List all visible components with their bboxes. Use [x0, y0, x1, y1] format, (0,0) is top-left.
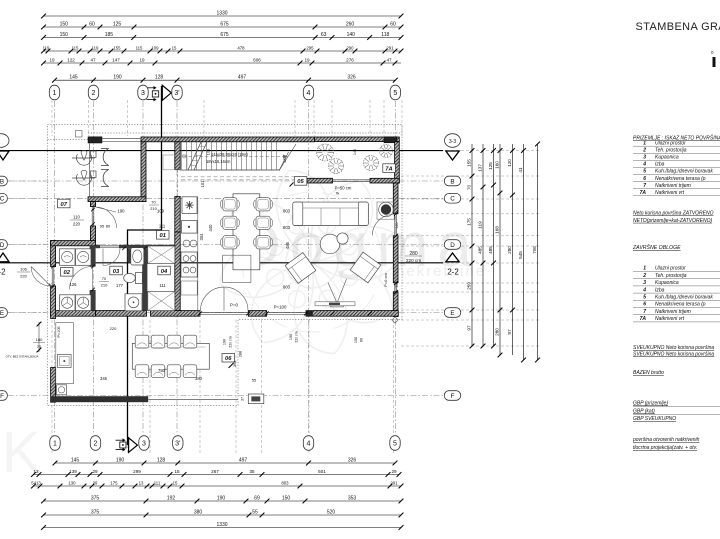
svg-text:Neto korisna površina ZATVOREN: Neto korisna površina ZATVORENO [633, 211, 714, 217]
svg-text:120: 120 [507, 159, 512, 167]
svg-text:OTV. BEZ OSTAKLJENJA: OTV. BEZ OSTAKLJENJA [6, 355, 39, 359]
svg-text:B: B [0, 178, 4, 185]
svg-text:02: 02 [63, 270, 70, 276]
svg-text:29: 29 [93, 480, 98, 485]
svg-text:185: 185 [105, 32, 114, 38]
svg-text:155: 155 [466, 159, 471, 167]
svg-text:290: 290 [346, 45, 354, 50]
svg-text:C: C [450, 196, 455, 203]
svg-text:2: 2 [642, 273, 646, 279]
svg-text:111: 111 [159, 224, 166, 229]
svg-text:35: 35 [282, 158, 287, 163]
svg-text:220: 220 [20, 274, 27, 279]
svg-text:180: 180 [36, 337, 43, 342]
svg-text:7: 7 [643, 183, 646, 189]
svg-text:površina otvorenih natkrivenih: površina otvorenih natkrivenih [632, 437, 700, 443]
svg-text:Teh. prostorija: Teh. prostorija [655, 147, 687, 153]
svg-text:Natkriveni trijem: Natkriveni trijem [655, 309, 691, 315]
svg-text:125: 125 [113, 21, 122, 27]
svg-text:119: 119 [43, 45, 50, 50]
svg-text:190: 190 [118, 209, 126, 214]
svg-text:70: 70 [102, 276, 107, 281]
svg-text:4: 4 [307, 441, 311, 448]
svg-text:175: 175 [466, 218, 471, 226]
svg-text:GBP (kat): GBP (kat) [633, 409, 655, 415]
svg-text:140: 140 [347, 32, 356, 38]
svg-text:305: 305 [233, 361, 237, 367]
svg-text:15: 15 [172, 45, 177, 50]
svg-text:803: 803 [281, 480, 289, 485]
svg-text:Teh. prostorija: Teh. prostorija [655, 273, 687, 279]
svg-text:101: 101 [206, 148, 211, 155]
svg-text:Kupaonica: Kupaonica [655, 280, 679, 286]
svg-text:110: 110 [73, 215, 80, 220]
svg-text:210: 210 [101, 283, 108, 288]
svg-text:168: 168 [494, 226, 499, 234]
svg-text:150: 150 [60, 21, 69, 27]
svg-text:3: 3 [643, 280, 646, 286]
svg-text:18vx16,16cm: 18vx16,16cm [206, 159, 231, 164]
svg-text:Kuh./blag./dnevni boravak: Kuh./blag./dnevni boravak [655, 169, 713, 175]
svg-text:291: 291 [386, 45, 394, 50]
svg-text:192: 192 [167, 495, 176, 501]
svg-text:Natkriveni vrt: Natkriveni vrt [655, 316, 685, 322]
svg-text:SVEUKUPNO Neto korisna površi: SVEUKUPNO Neto korisna površina [633, 352, 714, 358]
svg-text:111: 111 [159, 283, 166, 288]
svg-text:3: 3 [643, 155, 646, 161]
svg-text:19: 19 [139, 57, 145, 62]
svg-text:260: 260 [346, 21, 355, 27]
svg-text:295: 295 [306, 45, 314, 50]
svg-text:D: D [0, 242, 5, 249]
svg-text:4: 4 [642, 287, 646, 293]
svg-text:3': 3' [174, 90, 179, 97]
svg-text:19: 19 [304, 57, 310, 62]
svg-text:3: 3 [142, 441, 146, 448]
svg-text:110: 110 [395, 222, 399, 228]
svg-text:07: 07 [60, 202, 67, 208]
svg-text:128: 128 [155, 75, 164, 81]
svg-text:P=105: P=105 [57, 326, 61, 337]
svg-text:1: 1 [53, 441, 57, 448]
svg-text:E: E [450, 310, 454, 317]
svg-text:Nenatkrivena terasa (p: Nenatkrivena terasa (p [655, 302, 706, 308]
svg-text:K: K [2, 420, 41, 485]
svg-text:497: 497 [238, 75, 247, 81]
svg-text:tlocrtna projekcija(zatv. + ot: tlocrtna projekcija(zatv. + otv. [633, 445, 697, 451]
svg-text:486: 486 [285, 241, 290, 249]
svg-text:150: 150 [354, 337, 358, 343]
svg-text:440: 440 [208, 224, 213, 232]
svg-text:NETO(prizemlje+kat-ZATVORENO): NETO(prizemlje+kat-ZATVORENO) [633, 218, 712, 224]
svg-text:2: 2 [642, 147, 646, 153]
svg-text:37: 37 [241, 397, 245, 401]
svg-text:803: 803 [283, 284, 291, 289]
svg-text:6: 6 [643, 302, 646, 308]
svg-text:7: 7 [643, 309, 646, 315]
svg-text:155: 155 [113, 45, 121, 50]
svg-text:29: 29 [92, 469, 98, 474]
svg-text:380: 380 [195, 376, 203, 381]
svg-text:606: 606 [253, 57, 261, 62]
svg-text:GBP SVEUKUPNO: GBP SVEUKUPNO [633, 416, 676, 422]
svg-text:140: 140 [353, 149, 357, 155]
svg-text:2-2: 2-2 [447, 268, 459, 277]
svg-text:545: 545 [518, 251, 523, 259]
svg-text:220 cm: 220 cm [295, 331, 299, 342]
svg-text:6: 6 [643, 176, 646, 182]
svg-text:109: 109 [157, 209, 165, 214]
svg-text:119: 119 [477, 221, 482, 229]
svg-text:D: D [450, 242, 455, 249]
svg-text:675: 675 [220, 32, 229, 38]
svg-text:06: 06 [225, 356, 232, 362]
svg-text:Ulazni prostor: Ulazni prostor [655, 140, 686, 146]
svg-text:280: 280 [494, 328, 499, 336]
svg-text:130: 130 [68, 480, 76, 485]
svg-text:BAZEN brutto: BAZEN brutto [633, 370, 664, 376]
svg-text:60: 60 [390, 21, 396, 27]
svg-text:60: 60 [360, 338, 364, 342]
svg-text:118: 118 [381, 32, 389, 38]
svg-text:5: 5 [643, 169, 646, 175]
svg-text:P=0: P=0 [230, 303, 238, 308]
svg-text:7A: 7A [640, 190, 647, 196]
svg-text:190: 190 [289, 334, 293, 340]
svg-text:7A: 7A [385, 166, 392, 172]
svg-text:1: 1 [53, 90, 57, 97]
svg-text:2: 2 [94, 441, 98, 448]
svg-text:Izba: Izba [655, 287, 665, 293]
svg-text:190: 190 [217, 495, 226, 501]
svg-text:267: 267 [211, 469, 219, 474]
svg-text:125: 125 [488, 162, 493, 170]
svg-text:119: 119 [92, 45, 99, 50]
svg-text:115: 115 [136, 45, 143, 50]
svg-text:126: 126 [70, 282, 78, 287]
svg-text:485: 485 [488, 246, 493, 254]
svg-text:803: 803 [283, 225, 291, 230]
svg-text:5413: 5413 [31, 480, 41, 485]
svg-text:47: 47 [386, 57, 392, 62]
svg-text:276: 276 [346, 57, 354, 62]
svg-text:55: 55 [252, 378, 257, 383]
svg-text:128: 128 [157, 457, 166, 463]
svg-text:Izba: Izba [655, 162, 665, 168]
svg-text:40: 40 [48, 282, 53, 287]
svg-text:478: 478 [237, 45, 245, 50]
svg-text:13: 13 [33, 469, 39, 474]
svg-text:299: 299 [133, 469, 141, 474]
svg-text:Natkriveni vrt: Natkriveni vrt [655, 190, 685, 196]
svg-text:55: 55 [252, 509, 258, 515]
svg-text:Kupaonica: Kupaonica [655, 155, 679, 161]
svg-text:106: 106 [20, 267, 27, 272]
svg-text:97: 97 [507, 329, 512, 335]
svg-text:14ax28,00x26 (19A): 14ax28,00x26 (19A) [211, 152, 249, 157]
svg-text:60: 60 [89, 21, 95, 27]
svg-text:STAMBENA GRAĐEVINA: STAMBENA GRAĐEVINA [636, 21, 720, 33]
svg-text:04: 04 [161, 269, 168, 275]
svg-text:P=0 cm: P=0 cm [383, 272, 388, 286]
svg-text:150: 150 [60, 32, 69, 38]
svg-text:SVEUKUPNO Neto korisna površin: SVEUKUPNO Neto korisna površina [633, 345, 714, 351]
svg-text:3': 3' [175, 441, 180, 448]
svg-text:485: 485 [477, 246, 482, 254]
svg-text:326: 326 [348, 457, 357, 463]
svg-text:1330: 1330 [216, 522, 227, 528]
svg-text:520: 520 [327, 509, 336, 515]
svg-text:2: 2 [92, 90, 96, 97]
svg-text:1: 1 [643, 140, 646, 146]
svg-text:7A: 7A [640, 316, 647, 322]
svg-text:Nenatkrivena terasa (p: Nenatkrivena terasa (p [655, 176, 706, 182]
svg-text:501: 501 [318, 469, 326, 474]
svg-text:145: 145 [71, 457, 80, 463]
svg-text:326: 326 [347, 75, 356, 81]
svg-text:C: C [0, 196, 5, 203]
svg-text:115: 115 [72, 45, 79, 50]
svg-text:Kuh./blag./dnevni boravak: Kuh./blag./dnevni boravak [655, 295, 713, 301]
svg-text:210: 210 [150, 206, 157, 211]
svg-text:01: 01 [159, 233, 165, 239]
svg-text:706: 706 [532, 246, 537, 254]
svg-text:15: 15 [173, 480, 178, 485]
svg-text:101: 101 [200, 180, 205, 188]
svg-text:139: 139 [69, 469, 77, 474]
svg-text:fix: fix [336, 191, 340, 195]
svg-text:69: 69 [254, 495, 260, 501]
svg-text:ZAVRŠNE OBLOGE: ZAVRŠNE OBLOGE [632, 244, 681, 251]
svg-text:780: 780 [158, 368, 166, 373]
svg-text:15: 15 [174, 469, 180, 474]
svg-text:4: 4 [307, 90, 311, 97]
svg-text:19: 19 [49, 57, 55, 62]
svg-text:E: E [0, 310, 4, 317]
svg-text:41: 41 [518, 167, 523, 173]
svg-text:P=50 cm: P=50 cm [335, 186, 352, 191]
svg-text:145: 145 [69, 75, 78, 81]
svg-text:97: 97 [466, 325, 471, 331]
svg-text:-2: -2 [0, 268, 6, 277]
svg-text:304: 304 [199, 233, 204, 241]
svg-text:259: 259 [466, 282, 471, 290]
svg-text:375: 375 [91, 509, 100, 515]
svg-text:220: 220 [110, 326, 117, 331]
svg-text:137: 137 [477, 164, 482, 172]
svg-text:P=100: P=100 [274, 304, 287, 309]
svg-text:288: 288 [239, 351, 243, 357]
svg-text:Natkriveni trijem: Natkriveni trijem [655, 183, 691, 189]
svg-text:95: 95 [100, 224, 105, 229]
svg-text:70: 70 [37, 344, 42, 349]
svg-text:150: 150 [282, 495, 291, 501]
svg-text:122: 122 [67, 57, 75, 62]
svg-text:3-3: 3-3 [449, 139, 456, 145]
svg-text:29: 29 [391, 469, 397, 474]
svg-text:220 cm: 220 cm [229, 336, 233, 347]
svg-text:5: 5 [393, 90, 397, 97]
svg-text:03: 03 [113, 269, 120, 275]
svg-text:160: 160 [494, 161, 499, 169]
svg-text:Ulazni prostor: Ulazni prostor [655, 266, 686, 272]
svg-text:190: 190 [113, 75, 122, 81]
svg-text:353: 353 [348, 495, 357, 501]
svg-text:147: 147 [112, 57, 120, 62]
svg-text:13: 13 [139, 480, 144, 485]
svg-text:B: B [450, 178, 454, 185]
svg-text:280: 280 [507, 246, 512, 254]
svg-text:4: 4 [642, 162, 646, 168]
svg-text:F: F [451, 393, 455, 400]
svg-text:70: 70 [151, 200, 156, 205]
svg-text:220: 220 [73, 222, 81, 227]
svg-text:220 cm: 220 cm [406, 258, 421, 263]
svg-text:70: 70 [466, 185, 471, 191]
svg-text:190: 190 [116, 457, 125, 463]
svg-text:380: 380 [194, 509, 203, 515]
svg-text:291: 291 [390, 480, 398, 485]
svg-text:1: 1 [643, 266, 646, 272]
svg-text:05: 05 [297, 179, 304, 185]
svg-text:GBP (prizemlje): GBP (prizemlje) [633, 401, 668, 407]
svg-text:675: 675 [220, 21, 229, 27]
svg-text:63: 63 [321, 32, 327, 38]
svg-text:F: F [0, 393, 4, 400]
svg-text:175: 175 [110, 480, 118, 485]
svg-text:nekretnine: nekretnine [396, 263, 486, 280]
svg-text:47: 47 [90, 57, 96, 62]
svg-text:1330: 1330 [216, 10, 227, 16]
svg-text:375: 375 [91, 495, 100, 501]
svg-text:5: 5 [643, 295, 646, 301]
svg-text:190: 190 [223, 339, 227, 345]
svg-text:80: 80 [106, 224, 111, 229]
svg-text:3: 3 [141, 90, 145, 97]
svg-text:111: 111 [154, 480, 161, 485]
svg-text:497: 497 [239, 457, 248, 463]
svg-text:35: 35 [249, 469, 255, 474]
svg-text:109: 109 [151, 45, 159, 50]
svg-text:803: 803 [283, 208, 291, 213]
svg-text:5: 5 [393, 441, 397, 448]
svg-text:177: 177 [116, 283, 124, 288]
svg-text:345: 345 [100, 376, 108, 381]
